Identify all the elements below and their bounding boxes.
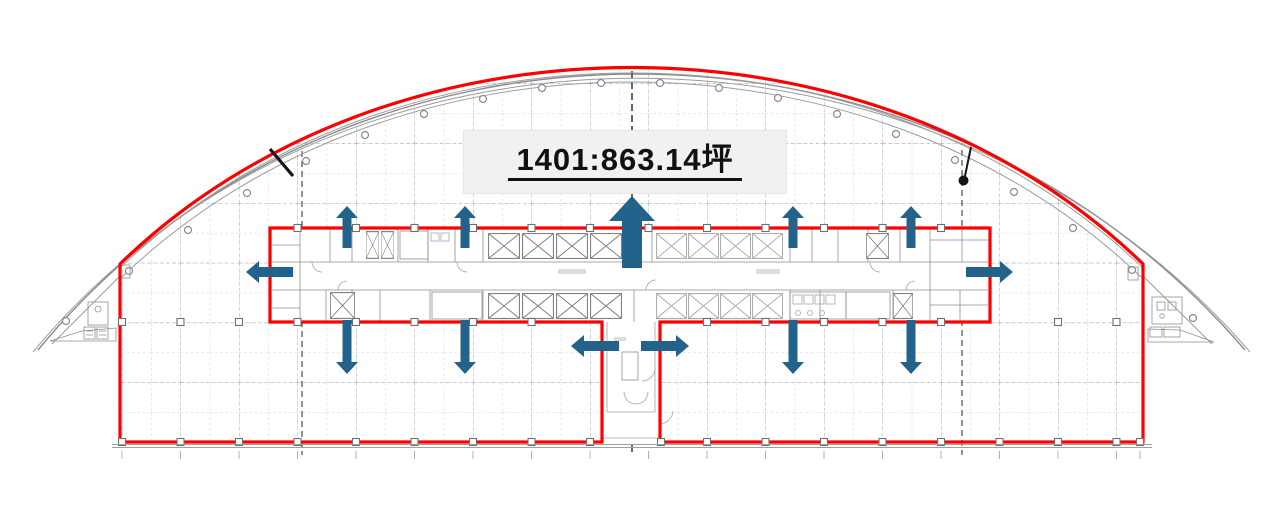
left-stair-structure [50, 265, 130, 341]
floorplan-page: 1401:863.14坪 [0, 0, 1280, 520]
area-label: 1401:863.14坪 [463, 130, 787, 194]
area-label-text: 1401:863.14坪 [508, 143, 741, 181]
floorplan-drawing [0, 0, 1280, 520]
